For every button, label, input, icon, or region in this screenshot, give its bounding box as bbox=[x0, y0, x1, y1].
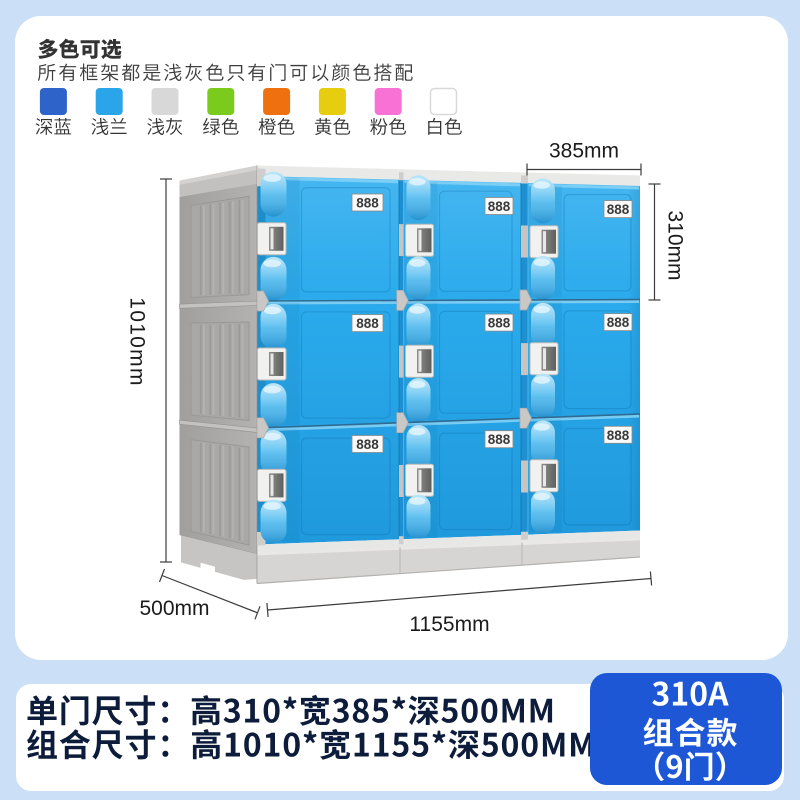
svg-text:888: 888 bbox=[356, 196, 379, 211]
svg-text:1010mm: 1010mm bbox=[126, 297, 149, 387]
svg-text:888: 888 bbox=[607, 315, 630, 330]
svg-text:888: 888 bbox=[488, 432, 511, 447]
svg-text:1155mm: 1155mm bbox=[409, 613, 489, 636]
svg-text:310mm: 310mm bbox=[664, 210, 687, 280]
svg-text:888: 888 bbox=[488, 316, 511, 331]
svg-text:888: 888 bbox=[488, 199, 511, 214]
svg-text:385mm: 385mm bbox=[549, 140, 619, 163]
svg-text:888: 888 bbox=[607, 202, 630, 217]
svg-text:888: 888 bbox=[356, 437, 379, 452]
svg-text:888: 888 bbox=[607, 428, 630, 443]
svg-text:500mm: 500mm bbox=[139, 597, 209, 620]
svg-text:888: 888 bbox=[356, 316, 379, 331]
